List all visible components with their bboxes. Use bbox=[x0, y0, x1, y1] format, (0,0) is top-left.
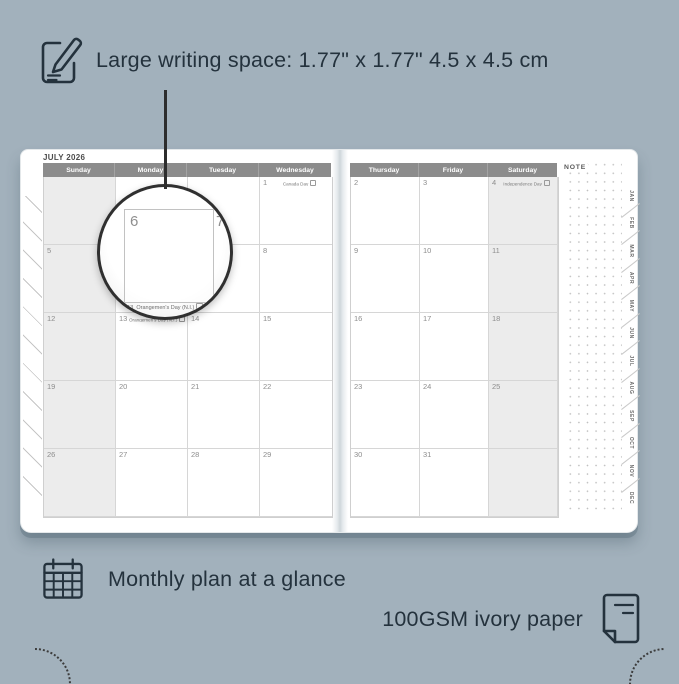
calendar-cell: 4Independence Day bbox=[489, 177, 558, 245]
writing-space-annotation: Large writing space: 1.77" x 1.77" 4.5 x… bbox=[38, 30, 658, 90]
day-header: Saturday bbox=[488, 163, 557, 177]
corner-perforation-right bbox=[621, 640, 665, 684]
paper-text: 100GSM ivory paper bbox=[382, 607, 583, 632]
calendar-cell: 22 bbox=[260, 381, 332, 449]
note-label: NOTE bbox=[564, 164, 588, 171]
monthly-glance-annotation: Monthly plan at a glance bbox=[40, 556, 346, 602]
magnifier-circle: 6 7 13 Orangemen's Day (N.I.) bbox=[97, 184, 233, 320]
date-number: 10 bbox=[420, 245, 431, 255]
calendar-cell: 14 bbox=[188, 313, 260, 381]
calendar-cell: 9 bbox=[351, 245, 420, 313]
corner-perforation-left bbox=[35, 640, 79, 684]
calendar-cell: 8 bbox=[260, 245, 332, 313]
calendar-cell: 15 bbox=[260, 313, 332, 381]
calendar-icon bbox=[40, 556, 86, 602]
date-number: 26 bbox=[44, 449, 55, 459]
date-number: 28 bbox=[188, 449, 199, 459]
date-number: 1 bbox=[260, 177, 267, 187]
page-spine bbox=[332, 150, 348, 532]
day-header: Friday bbox=[419, 163, 488, 177]
calendar-cell: 30 bbox=[351, 449, 420, 517]
date-number: 8 bbox=[260, 245, 267, 255]
calendar-cell: 25 bbox=[489, 381, 558, 449]
calendar-cell: 21 bbox=[188, 381, 260, 449]
magnified-date-7: 7 bbox=[216, 213, 224, 230]
monthly-glance-text: Monthly plan at a glance bbox=[108, 567, 346, 592]
month-tab-label: JUL bbox=[628, 355, 634, 366]
calendar-cell: 13Orangemen's Day (N.I.) bbox=[116, 313, 188, 381]
calendar-cell: 31 bbox=[420, 449, 489, 517]
writing-space-text: Large writing space: 1.77" x 1.77" 4.5 x… bbox=[96, 48, 549, 73]
date-number: 31 bbox=[420, 449, 431, 459]
date-number: 27 bbox=[116, 449, 127, 459]
calendar-cell bbox=[489, 449, 558, 517]
date-number: 24 bbox=[420, 381, 431, 391]
calendar-cell: 28 bbox=[188, 449, 260, 517]
date-number: 16 bbox=[351, 313, 362, 323]
month-tab-label: NOV bbox=[628, 464, 634, 477]
month-tab-label: OCT bbox=[628, 437, 634, 449]
calendar-cell: 27 bbox=[116, 449, 188, 517]
month-tab-label: MAR bbox=[628, 244, 634, 257]
pencil-note-icon bbox=[38, 33, 84, 87]
month-tab-dec: DEC bbox=[622, 485, 639, 513]
date-number: 13 bbox=[116, 313, 127, 323]
date-number: 19 bbox=[44, 381, 55, 391]
holiday-label: Canada Day bbox=[267, 180, 332, 187]
month-tab-label: JAN bbox=[628, 190, 634, 202]
date-number: 17 bbox=[420, 313, 431, 323]
date-number bbox=[188, 177, 191, 179]
calendar-cell: 12 bbox=[44, 313, 116, 381]
holiday-label: Independence Day bbox=[496, 180, 557, 187]
calendar-cell: 16 bbox=[351, 313, 420, 381]
holiday-marker-icon bbox=[544, 180, 550, 186]
calendar-cell: 11 bbox=[489, 245, 558, 313]
right-day-header-row: ThursdayFridaySaturday bbox=[350, 163, 557, 177]
date-number: 29 bbox=[260, 449, 271, 459]
calendar-cell: 20 bbox=[116, 381, 188, 449]
date-number: 5 bbox=[44, 245, 51, 255]
date-number bbox=[44, 177, 47, 179]
calendar-cell: 3 bbox=[420, 177, 489, 245]
month-tab-label: APR bbox=[628, 272, 634, 284]
month-tab-label: JUN bbox=[628, 327, 634, 339]
calendar-cell: 23 bbox=[351, 381, 420, 449]
month-tab-label: AUG bbox=[628, 382, 634, 395]
magnified-footer-day: 13 bbox=[127, 305, 133, 311]
magnified-footer-holiday: Orangemen's Day (N.I.) bbox=[136, 305, 194, 311]
right-calendar-grid: 234Independence Day910111617182324253031 bbox=[350, 177, 559, 518]
date-number: 25 bbox=[489, 381, 500, 391]
month-tab-label: FEB bbox=[628, 217, 634, 229]
calendar-cell: 2 bbox=[351, 177, 420, 245]
date-number: 22 bbox=[260, 381, 271, 391]
date-number: 12 bbox=[44, 313, 55, 323]
date-number bbox=[489, 449, 492, 451]
note-dot-grid bbox=[563, 163, 622, 511]
day-header: Wednesday bbox=[259, 163, 331, 177]
date-number: 18 bbox=[489, 313, 500, 323]
month-tab-label: DEC bbox=[628, 492, 634, 504]
callout-connector-line bbox=[164, 90, 167, 189]
paper-annotation: 100GSM ivory paper bbox=[382, 592, 641, 646]
calendar-cell: 1Canada Day bbox=[260, 177, 332, 245]
day-header: Thursday bbox=[350, 163, 419, 177]
magnified-date-6: 6 bbox=[130, 213, 138, 230]
date-number: 4 bbox=[489, 177, 496, 187]
month-tab-strip: JANFEBMARAPRMAYJUNJULAUGSEPOCTNOVDEC bbox=[622, 182, 639, 512]
calendar-cell: 17 bbox=[420, 313, 489, 381]
left-day-header-row: SundayMondayTuesdayWednesday bbox=[43, 163, 331, 177]
month-title: JULY 2026 bbox=[43, 153, 85, 162]
paper-sheet-icon bbox=[599, 592, 641, 646]
date-number: 20 bbox=[116, 381, 127, 391]
month-tab-label: MAY bbox=[628, 300, 634, 312]
date-number: 9 bbox=[351, 245, 358, 255]
date-number: 30 bbox=[351, 449, 362, 459]
date-number: 15 bbox=[260, 313, 271, 323]
holiday-marker-icon bbox=[310, 180, 316, 186]
left-page-edge-hatch bbox=[23, 196, 42, 504]
magnified-holiday-row: 13 Orangemen's Day (N.I.) bbox=[100, 303, 230, 311]
calendar-cell: 18 bbox=[489, 313, 558, 381]
holiday-marker-icon bbox=[196, 303, 203, 310]
day-header: Tuesday bbox=[187, 163, 259, 177]
calendar-cell: 26 bbox=[44, 449, 116, 517]
calendar-cell: 19 bbox=[44, 381, 116, 449]
date-number: 23 bbox=[351, 381, 362, 391]
date-number: 11 bbox=[489, 245, 500, 255]
month-tab-label: SEP bbox=[628, 410, 634, 422]
calendar-cell: 29 bbox=[260, 449, 332, 517]
calendar-cell: 24 bbox=[420, 381, 489, 449]
calendar-cell: 10 bbox=[420, 245, 489, 313]
date-number: 2 bbox=[351, 177, 358, 187]
day-header: Monday bbox=[115, 163, 187, 177]
date-number: 3 bbox=[420, 177, 427, 187]
date-number: 21 bbox=[188, 381, 199, 391]
date-number bbox=[116, 177, 119, 179]
day-header: Sunday bbox=[43, 163, 115, 177]
